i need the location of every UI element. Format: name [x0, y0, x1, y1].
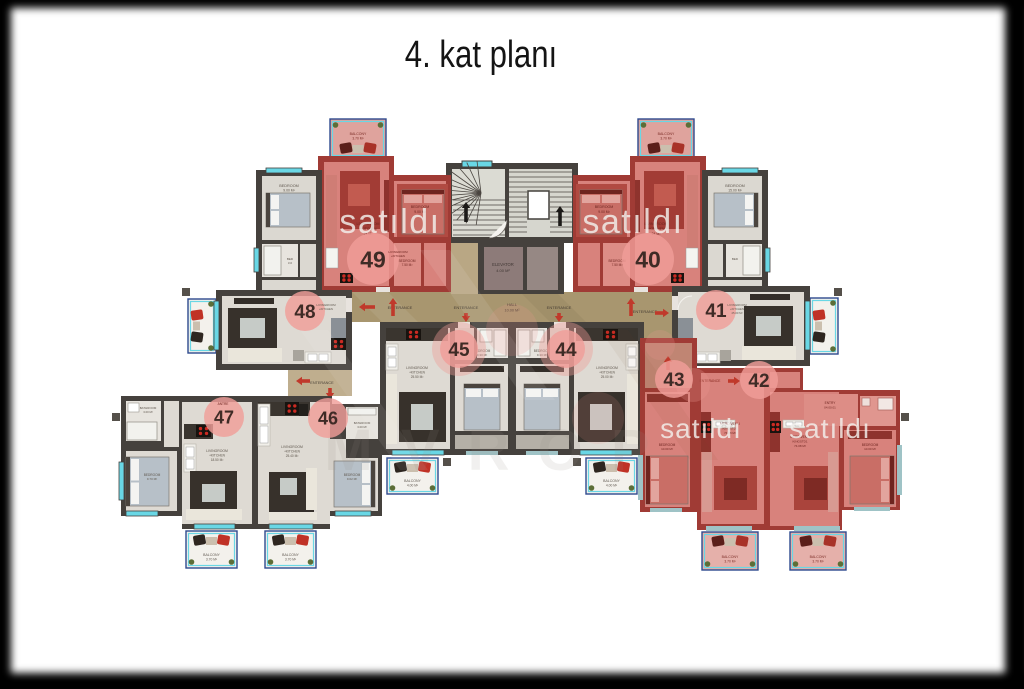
svg-text:4.00 M²: 4.00 M²: [407, 484, 419, 488]
svg-text:40: 40: [635, 246, 661, 272]
svg-text:18.50 M²: 18.50 M²: [211, 458, 224, 462]
svg-text:BALCONY: BALCONY: [658, 132, 675, 136]
svg-text:44: 44: [555, 340, 577, 361]
svg-text:BEDROOM: BEDROOM: [279, 184, 299, 188]
svg-text:10.00 M²: 10.00 M²: [661, 447, 673, 451]
svg-text:ELEVATOR: ELEVATOR: [492, 262, 514, 267]
svg-text:BALCONY: BALCONY: [722, 555, 739, 559]
svg-text:LIVINGROOM: LIVINGROOM: [206, 449, 228, 453]
svg-text:BALCONY: BALCONY: [350, 132, 367, 136]
svg-text:10.00 M²: 10.00 M²: [864, 447, 876, 451]
svg-text:satıldı: satıldı: [339, 203, 440, 241]
svg-text:ANTRE: ANTRE: [218, 402, 229, 406]
svg-text:47: 47: [214, 407, 234, 427]
svg-text:BEDROOM: BEDROOM: [725, 184, 745, 188]
svg-text:3.00 M²: 3.00 M²: [143, 410, 153, 414]
svg-text:+KITCHEN: +KITCHEN: [319, 307, 333, 311]
svg-text:9.00 M²: 9.00 M²: [283, 189, 295, 193]
svg-text:ENTERANCE: ENTERANCE: [310, 381, 334, 385]
svg-text:+KITCHEN: +KITCHEN: [209, 454, 226, 458]
svg-text:satıldı: satıldı: [582, 203, 683, 241]
svg-text:+KITCHEN: +KITCHEN: [409, 371, 426, 375]
svg-text:3.70 M²: 3.70 M²: [206, 558, 218, 562]
svg-text:BED: BED: [732, 257, 739, 261]
svg-text:25.50 M²: 25.50 M²: [411, 375, 424, 379]
svg-text:+KITCHEN: +KITCHEN: [391, 254, 405, 258]
svg-text:LIVINGROOM: LIVINGROOM: [281, 445, 303, 449]
svg-text:42: 42: [748, 371, 769, 392]
svg-text:25.40 M²: 25.40 M²: [286, 454, 299, 458]
svg-text:3.70 M²: 3.70 M²: [724, 560, 736, 564]
svg-text:48: 48: [294, 302, 315, 323]
svg-text:46: 46: [318, 408, 338, 428]
svg-text:04.00.01: 04.00.01: [824, 406, 836, 410]
svg-text:ENTERANCE: ENTERANCE: [633, 309, 658, 314]
svg-text:7.50 M²: 7.50 M²: [612, 263, 623, 267]
svg-text:4.00 M²: 4.00 M²: [496, 268, 510, 273]
svg-text:25.00 M²: 25.00 M²: [731, 311, 742, 315]
svg-text:43: 43: [663, 370, 684, 391]
svg-text:satıldı: satıldı: [789, 413, 871, 444]
svg-text:41: 41: [705, 301, 727, 322]
svg-text:4.00 M²: 4.00 M²: [606, 484, 618, 488]
svg-text:25.00 M²: 25.00 M²: [601, 375, 614, 379]
svg-text:49: 49: [360, 246, 386, 272]
svg-text:ENTRY: ENTRY: [825, 401, 837, 405]
svg-text:9.70 M²: 9.70 M²: [147, 477, 157, 481]
svg-text:BALCONY: BALCONY: [810, 555, 827, 559]
svg-text:BALCONY: BALCONY: [203, 553, 220, 557]
svg-text:3.70 M²: 3.70 M²: [285, 558, 297, 562]
svg-text:3.70 M²: 3.70 M²: [812, 560, 824, 564]
svg-text:LIVINGROOM: LIVINGROOM: [596, 366, 618, 370]
svg-text:3.0: 3.0: [288, 261, 293, 265]
svg-text:ENTERANCE: ENTERANCE: [547, 305, 572, 310]
svg-text:satıldı: satıldı: [660, 413, 742, 444]
svg-text:LIVINGROOM: LIVINGROOM: [406, 366, 428, 370]
svg-text:+KITCHEN: +KITCHEN: [599, 371, 616, 375]
svg-text:3.70 M²: 3.70 M²: [660, 137, 672, 141]
svg-text:3.70 M²: 3.70 M²: [352, 137, 364, 141]
svg-text:15.00 M²: 15.00 M²: [728, 189, 742, 193]
svg-text:74.08 M²: 74.08 M²: [794, 444, 806, 448]
svg-text:BALCONY: BALCONY: [282, 553, 299, 557]
svg-text:45: 45: [448, 340, 470, 361]
svg-text:+KITCHEN: +KITCHEN: [284, 450, 301, 454]
svg-text:7.50 M²: 7.50 M²: [402, 263, 413, 267]
